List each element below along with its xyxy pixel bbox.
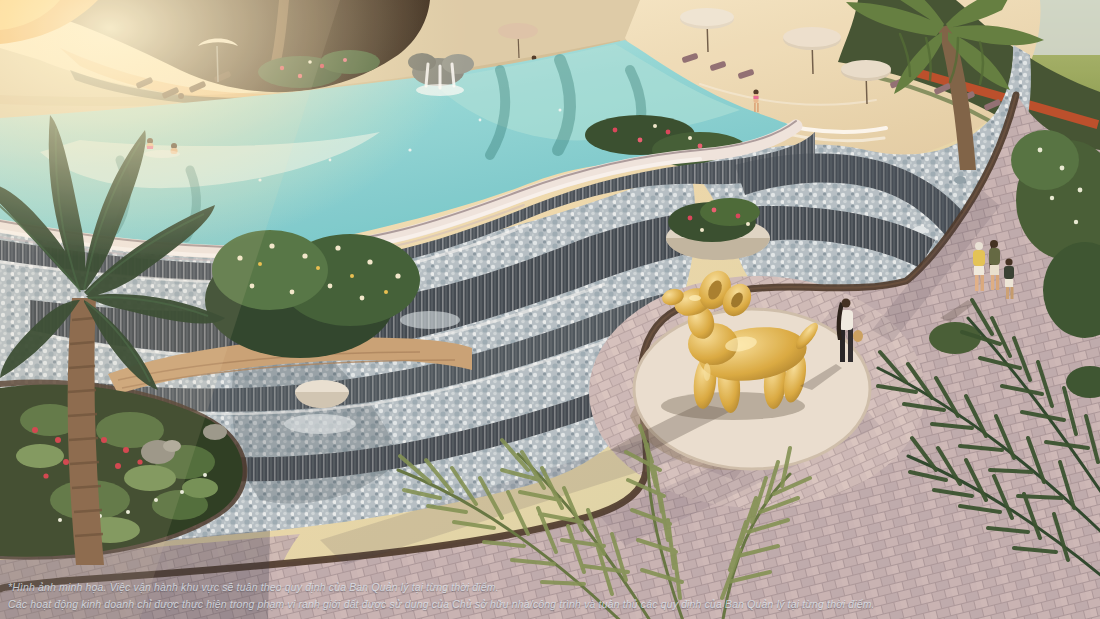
sunlight-overlay — [0, 0, 1100, 619]
resort-render: *Hình ảnh minh họa. Việc vận hành khu vự… — [0, 0, 1100, 619]
scene-canvas — [0, 0, 1100, 619]
